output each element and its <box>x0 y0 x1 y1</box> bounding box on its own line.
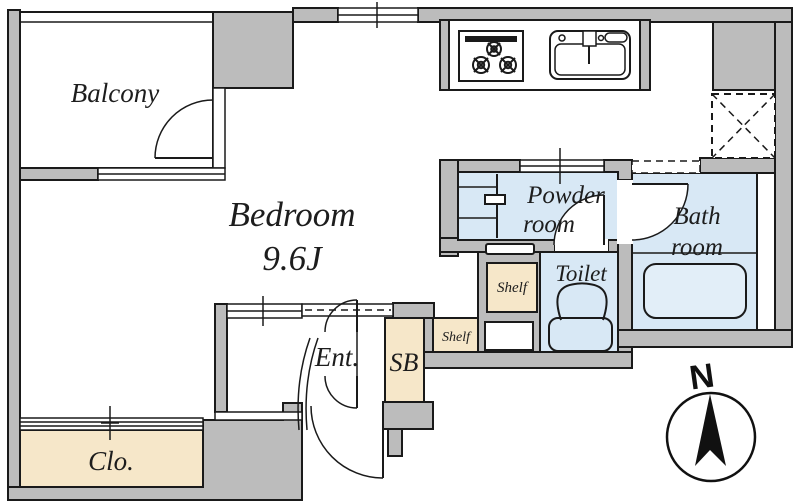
shelf-lower-label: Shelf <box>442 330 472 345</box>
wall-counter-left <box>440 20 449 90</box>
refrigerator-space-icon <box>712 94 775 158</box>
compass-north-arrow-icon <box>695 394 726 466</box>
stove-icon <box>459 31 523 81</box>
shoe-box-label: SB <box>390 348 419 377</box>
washer-handle <box>485 195 505 204</box>
wall-toilet-bottom <box>424 352 632 368</box>
compass-north-label: N <box>687 356 717 397</box>
wall-bath-bottom <box>612 330 792 347</box>
powder-room-label-line2: room <box>523 211 575 238</box>
balcony-side-panel <box>213 88 225 168</box>
shelf-upper-label: Shelf <box>497 280 529 296</box>
floor-plan-svg: N Balcony Bedroom 9.6J Powder room Bath … <box>0 0 800 504</box>
sink-faucet-base <box>583 31 596 46</box>
closet-sliding-door <box>20 418 203 430</box>
bath-room-label-line2: room <box>671 234 723 261</box>
stove-grill-bar <box>465 36 517 42</box>
floor-plan: N Balcony Bedroom 9.6J Powder room Bath … <box>0 0 800 504</box>
wall-sb-top <box>393 303 434 318</box>
wall-bath-top <box>700 158 775 173</box>
wall-balcony-bottom <box>20 168 98 180</box>
toilet-cabinet <box>485 322 533 350</box>
wall-top-right-block <box>713 22 775 90</box>
sink-tray <box>605 33 627 42</box>
bath-door-opening <box>617 180 633 244</box>
towel-bar <box>486 244 534 254</box>
bath-overhead-cabinet <box>632 161 700 173</box>
wall-counter-right <box>640 20 650 90</box>
closet-label: Clo. <box>88 446 134 476</box>
balcony-label: Balcony <box>71 78 159 108</box>
entrance-door-arc <box>311 406 383 478</box>
wall-entry-right <box>383 402 433 429</box>
wall-ent-left-column <box>215 304 227 412</box>
wall-left <box>8 10 20 500</box>
wall-entry-stub <box>388 429 402 456</box>
hall-door-lower-arc <box>325 376 357 408</box>
entrance-label: Ent. <box>314 342 359 372</box>
wall-top-left-segment <box>293 8 338 22</box>
bathtub-icon <box>644 264 746 318</box>
wall-right <box>775 22 792 347</box>
wall-top-block <box>213 12 293 88</box>
sink-icon <box>550 31 630 79</box>
bedroom-size-label: 9.6J <box>262 239 323 278</box>
bath-room-label-line1: Bath <box>673 203 720 230</box>
compass: N <box>667 356 755 481</box>
bedroom-label: Bedroom <box>228 195 355 234</box>
storage-lower-track <box>215 412 302 420</box>
powder-room-label-line1: Powder <box>526 182 605 209</box>
toilet-label: Toilet <box>555 261 607 286</box>
